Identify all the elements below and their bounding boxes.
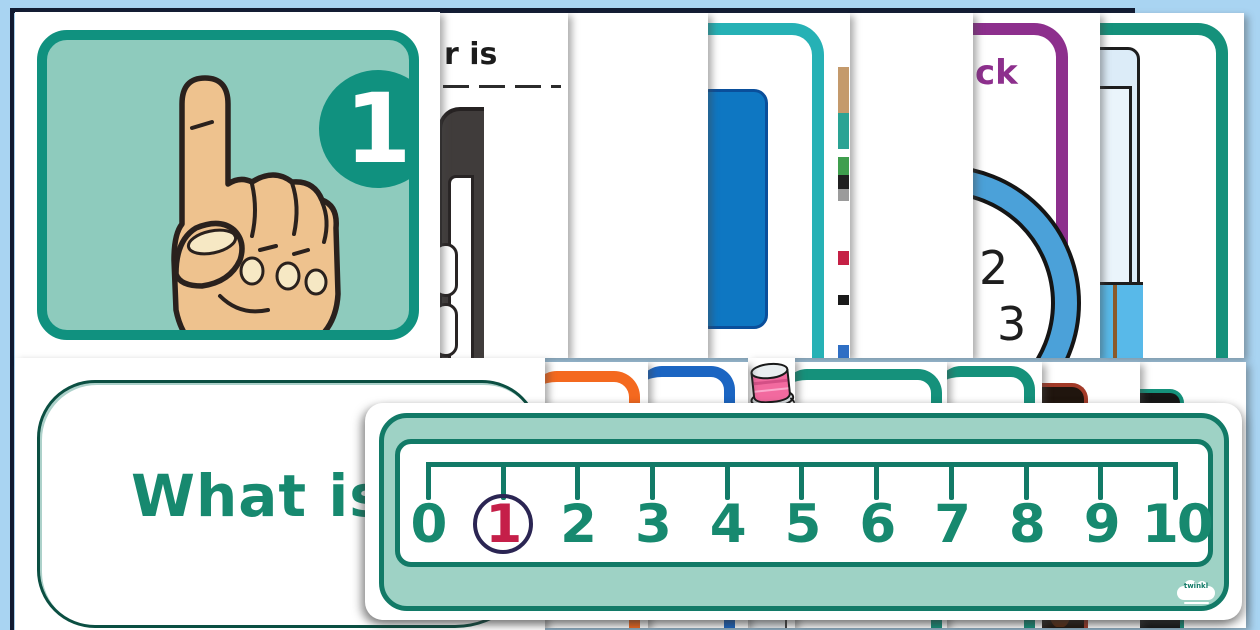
cyan-frame-card <box>708 13 850 358</box>
badge-number: 1 <box>345 70 412 188</box>
clock-title-fragment: ck <box>975 53 1018 93</box>
green-frame-card <box>1100 13 1244 358</box>
picture-illustration <box>1100 47 1140 358</box>
blank-card <box>568 13 708 358</box>
pole-line <box>1113 285 1117 358</box>
calculator-button <box>440 243 458 297</box>
question-text: What is <box>131 462 385 530</box>
number-label: 3 <box>618 497 686 553</box>
logo-tagline-bar <box>1184 602 1209 604</box>
answer-dash-line <box>443 85 561 88</box>
number-label: 5 <box>768 497 836 553</box>
number-label: 2 <box>544 497 612 553</box>
picture-inner-panel <box>1100 86 1132 286</box>
illustration-edge-strip <box>838 67 849 358</box>
number-label: 10 <box>1142 497 1210 553</box>
water-area <box>1100 282 1143 358</box>
calculator-button <box>440 303 458 357</box>
number-line-numbers: 0 1 2 3 4 5 6 7 8 9 10 <box>394 497 1210 553</box>
calculator-illustration <box>440 107 484 358</box>
worksheet-preview: 1 r is <box>0 0 1260 630</box>
number-label-highlighted: 1 <box>469 497 537 553</box>
number-label: 0 <box>394 497 462 553</box>
number-is-text-fragment: r is <box>444 37 497 72</box>
hand-illustration-panel: 1 <box>37 30 419 340</box>
number-label: 9 <box>1067 497 1135 553</box>
highlight-circle <box>473 494 533 554</box>
number-label: 7 <box>918 497 986 553</box>
number-is-card: r is <box>440 13 568 358</box>
brand-name: twinkl <box>1177 582 1215 590</box>
number-line-card: 0 1 2 3 4 5 6 7 8 9 10 twinkl <box>365 403 1242 620</box>
number-label: 4 <box>693 497 761 553</box>
number-label: 6 <box>843 497 911 553</box>
number-label: 8 <box>992 497 1060 553</box>
twinkl-logo: twinkl <box>1177 579 1221 609</box>
blue-rectangle-illustration <box>708 89 768 329</box>
blank-card <box>850 13 973 358</box>
clock-number: 2 <box>979 241 1008 295</box>
clock-card: ck 2 3 <box>973 13 1100 358</box>
clock-number: 3 <box>997 297 1026 351</box>
hand-sign-card: 1 <box>15 12 440 358</box>
